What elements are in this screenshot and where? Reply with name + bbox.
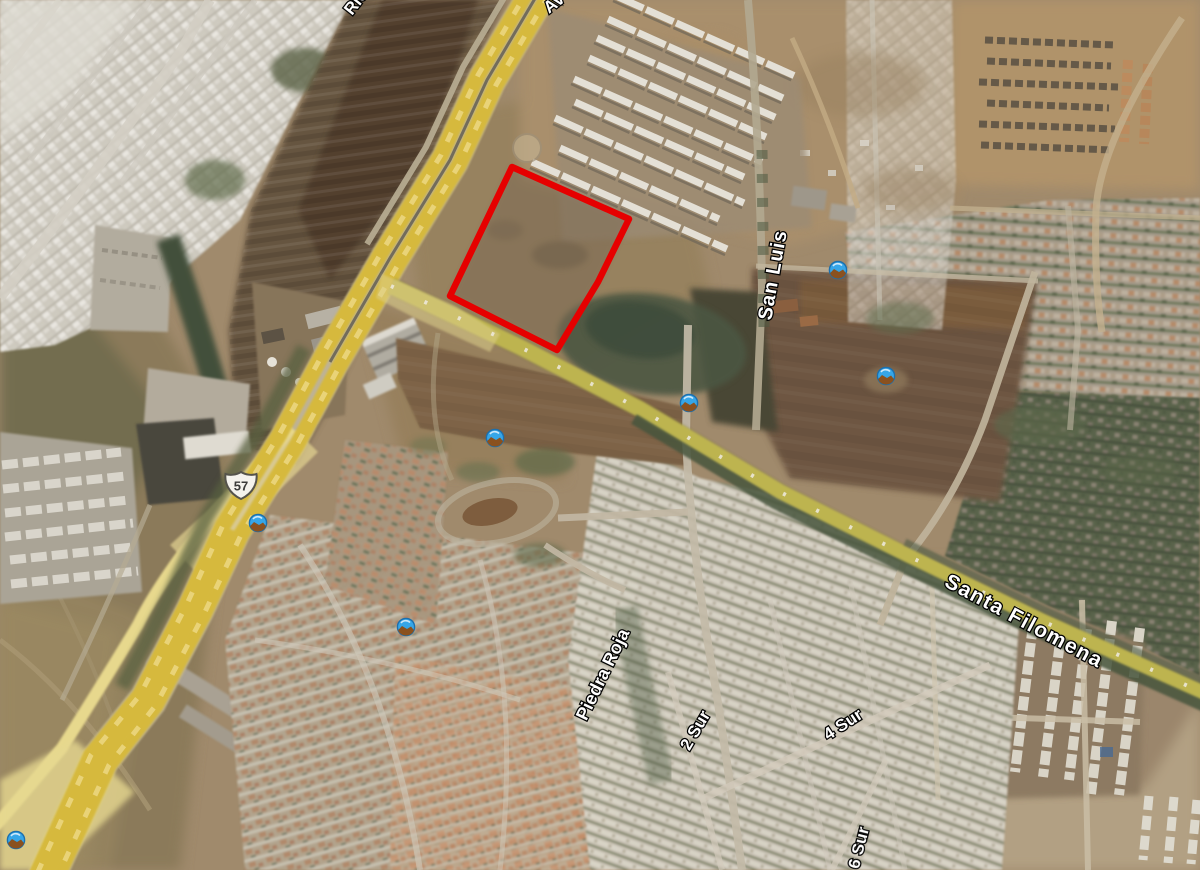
svg-text:57: 57 [234,479,248,494]
